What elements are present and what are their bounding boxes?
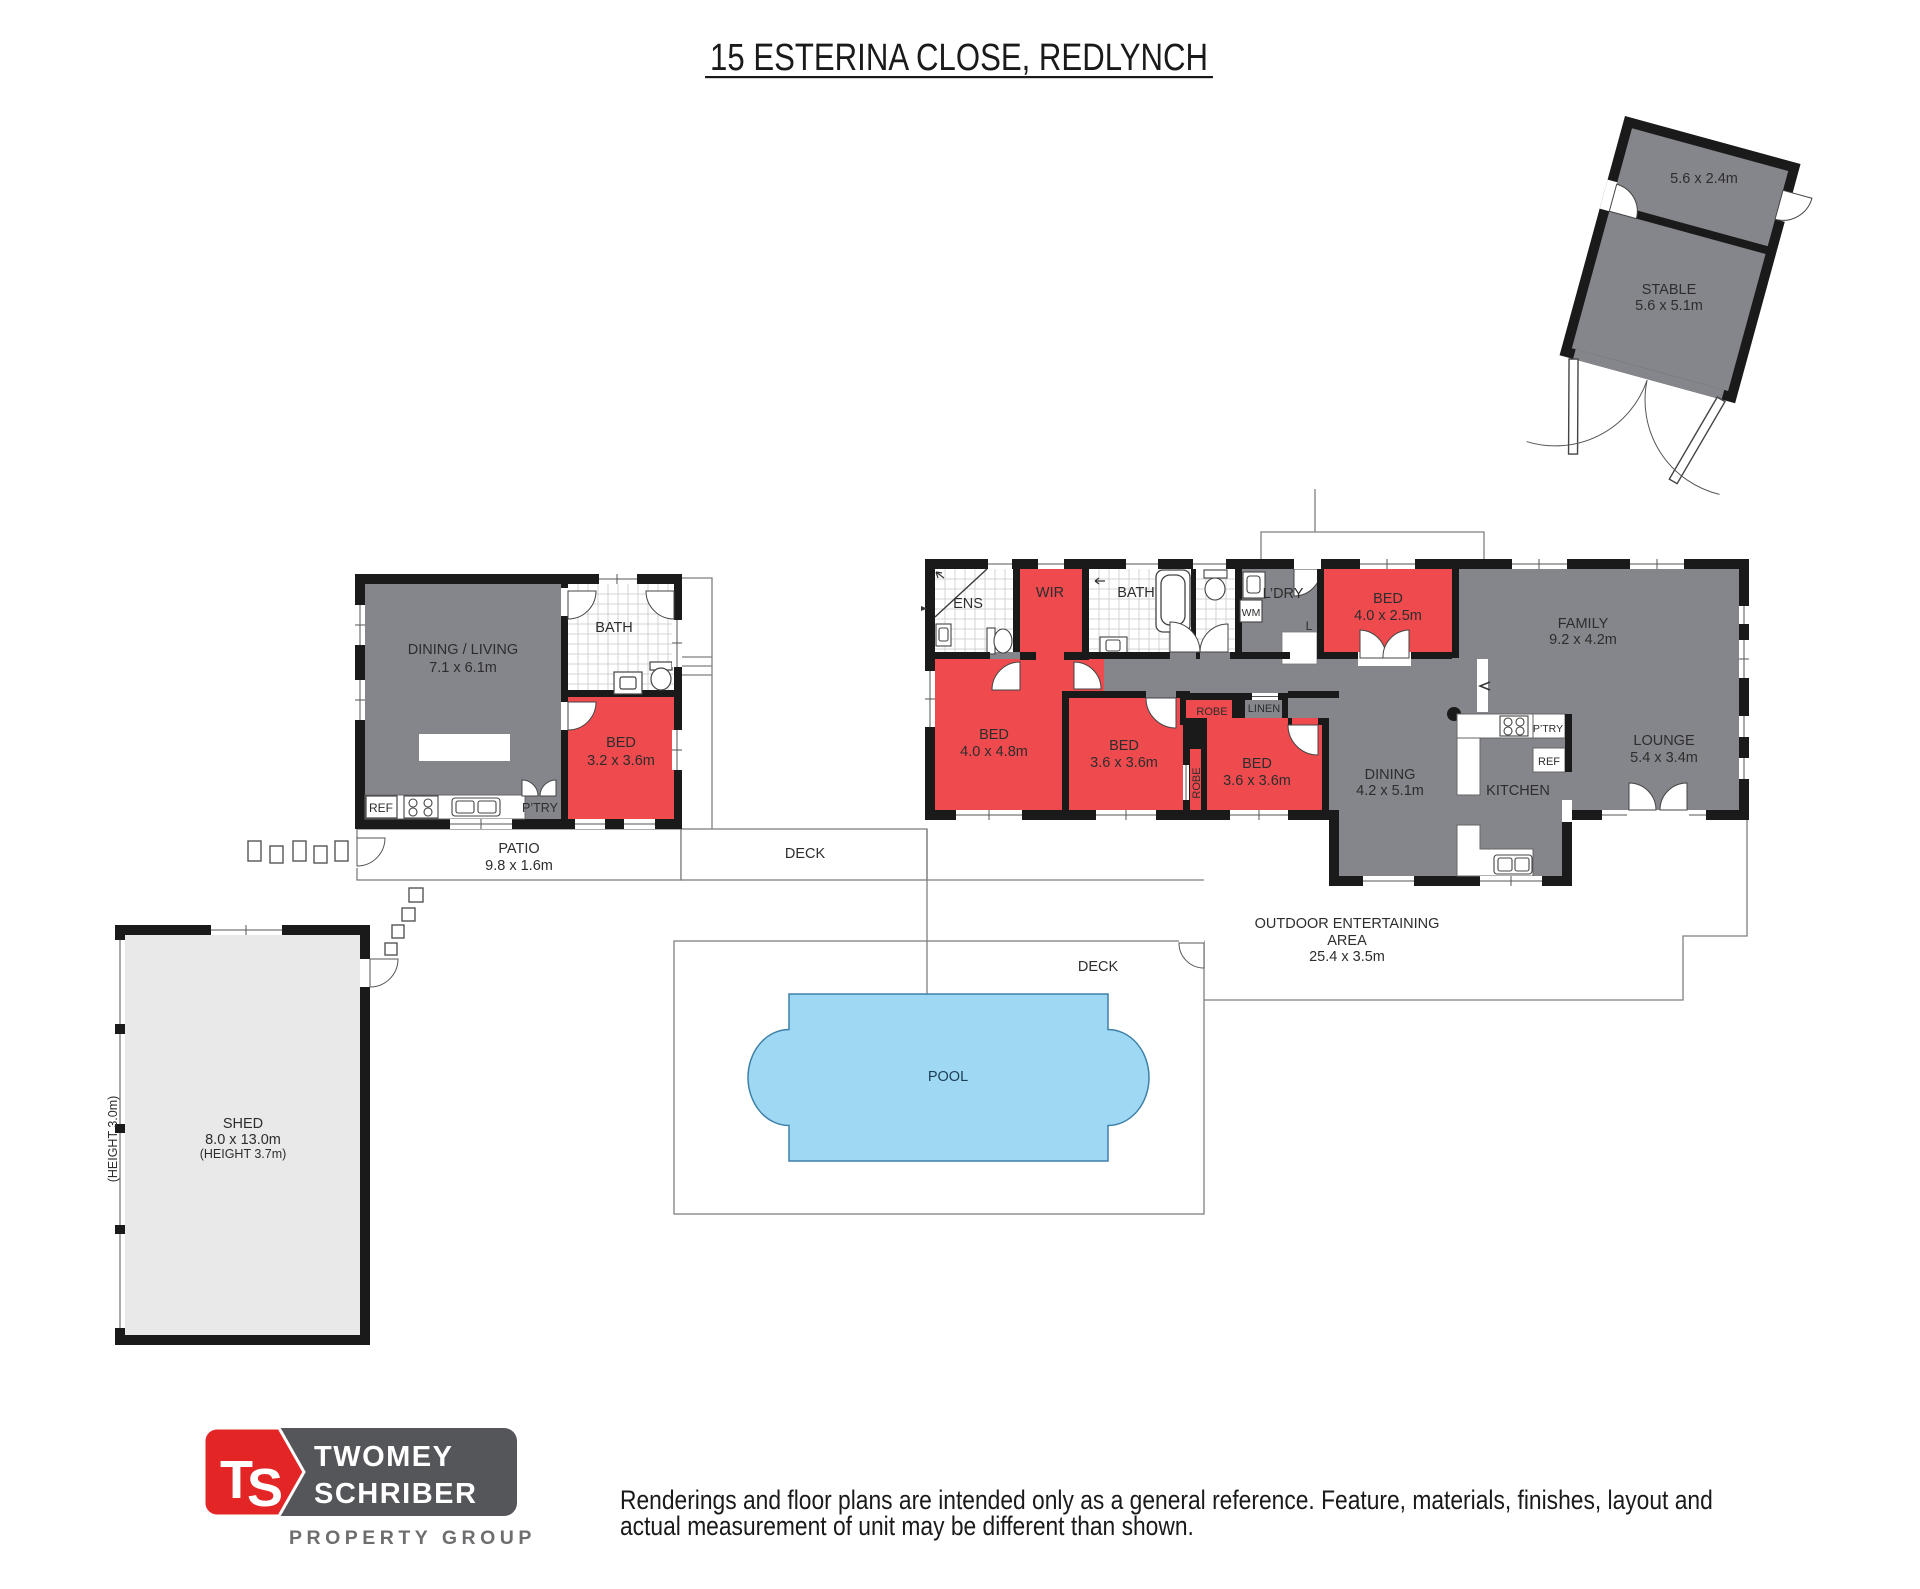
svg-text:BED: BED (1109, 738, 1139, 754)
svg-text:3.6 x 3.6m: 3.6 x 3.6m (1223, 773, 1291, 789)
svg-text:9.2 x 4.2m: 9.2 x 4.2m (1549, 632, 1617, 648)
svg-text:7.1 x 6.1m: 7.1 x 6.1m (429, 660, 497, 676)
svg-text:BATH: BATH (595, 620, 633, 636)
svg-text:TWOMEY: TWOMEY (314, 1441, 454, 1473)
svg-text:SHED: SHED (223, 1116, 263, 1132)
svg-text:DECK: DECK (785, 846, 826, 862)
svg-text:WM: WM (1242, 607, 1261, 619)
svg-text:ROBE: ROBE (1191, 767, 1203, 798)
svg-text:WIR: WIR (1036, 585, 1064, 601)
svg-text:4.2 x 5.1m: 4.2 x 5.1m (1356, 783, 1424, 799)
svg-text:REF: REF (369, 801, 393, 815)
svg-text:REF: REF (1538, 756, 1560, 768)
svg-text:9.8 x 1.6m: 9.8 x 1.6m (485, 858, 553, 874)
svg-text:BED: BED (979, 727, 1009, 743)
svg-text:BED: BED (606, 735, 636, 751)
svg-text:BED: BED (1373, 591, 1403, 607)
svg-text:(HEIGHT 3.0m): (HEIGHT 3.0m) (106, 1096, 120, 1183)
svg-text:P’TRY: P’TRY (522, 801, 559, 815)
svg-text:3.2 x 3.6m: 3.2 x 3.6m (587, 753, 655, 769)
svg-text:4.0 x 2.5m: 4.0 x 2.5m (1354, 608, 1422, 624)
svg-text:8.0 x 13.0m: 8.0 x 13.0m (205, 1132, 281, 1148)
svg-text:AREA: AREA (1327, 933, 1367, 949)
svg-text:actual measurement of unit may: actual measurement of unit may be differ… (620, 1511, 1194, 1541)
svg-text:ENS: ENS (953, 596, 983, 612)
svg-text:L: L (1306, 619, 1313, 633)
svg-text:OUTDOOR ENTERTAINING: OUTDOOR ENTERTAINING (1255, 916, 1440, 932)
svg-text:FAMILY: FAMILY (1558, 616, 1609, 632)
svg-text:5.4 x 3.4m: 5.4 x 3.4m (1630, 750, 1698, 766)
svg-text:4.0 x 4.8m: 4.0 x 4.8m (960, 744, 1028, 760)
svg-text:DECK: DECK (1078, 959, 1119, 975)
svg-text:25.4 x 3.5m: 25.4 x 3.5m (1309, 949, 1385, 965)
svg-text:3.6 x 3.6m: 3.6 x 3.6m (1090, 755, 1158, 771)
svg-text:BATH: BATH (1117, 585, 1155, 601)
svg-text:KITCHEN: KITCHEN (1486, 783, 1550, 799)
svg-text:P’TRY: P’TRY (1533, 723, 1563, 735)
svg-text:POOL: POOL (928, 1069, 968, 1085)
svg-text:LOUNGE: LOUNGE (1633, 733, 1695, 749)
svg-text:(HEIGHT 3.7m): (HEIGHT 3.7m) (200, 1147, 287, 1161)
svg-text:PATIO: PATIO (498, 841, 539, 857)
svg-text:L’DRY: L’DRY (1263, 586, 1304, 602)
svg-text:DINING / LIVING: DINING / LIVING (408, 642, 518, 658)
svg-text:BED: BED (1242, 756, 1272, 772)
svg-text:ROBE: ROBE (1196, 706, 1227, 718)
svg-text:5.6 x 2.4m: 5.6 x 2.4m (1670, 171, 1738, 187)
svg-text:15 ESTERINA CLOSE, REDLYNCH: 15 ESTERINA CLOSE, REDLYNCH (710, 37, 1208, 79)
svg-text:LINEN: LINEN (1248, 703, 1280, 715)
svg-text:DINING: DINING (1365, 767, 1416, 783)
svg-text:SCHRIBER: SCHRIBER (314, 1478, 477, 1510)
svg-text:S: S (247, 1458, 283, 1518)
svg-text:STABLE: STABLE (1642, 282, 1697, 298)
svg-text:5.6 x 5.1m: 5.6 x 5.1m (1635, 298, 1703, 314)
svg-text:PROPERTY GROUP: PROPERTY GROUP (289, 1527, 536, 1549)
